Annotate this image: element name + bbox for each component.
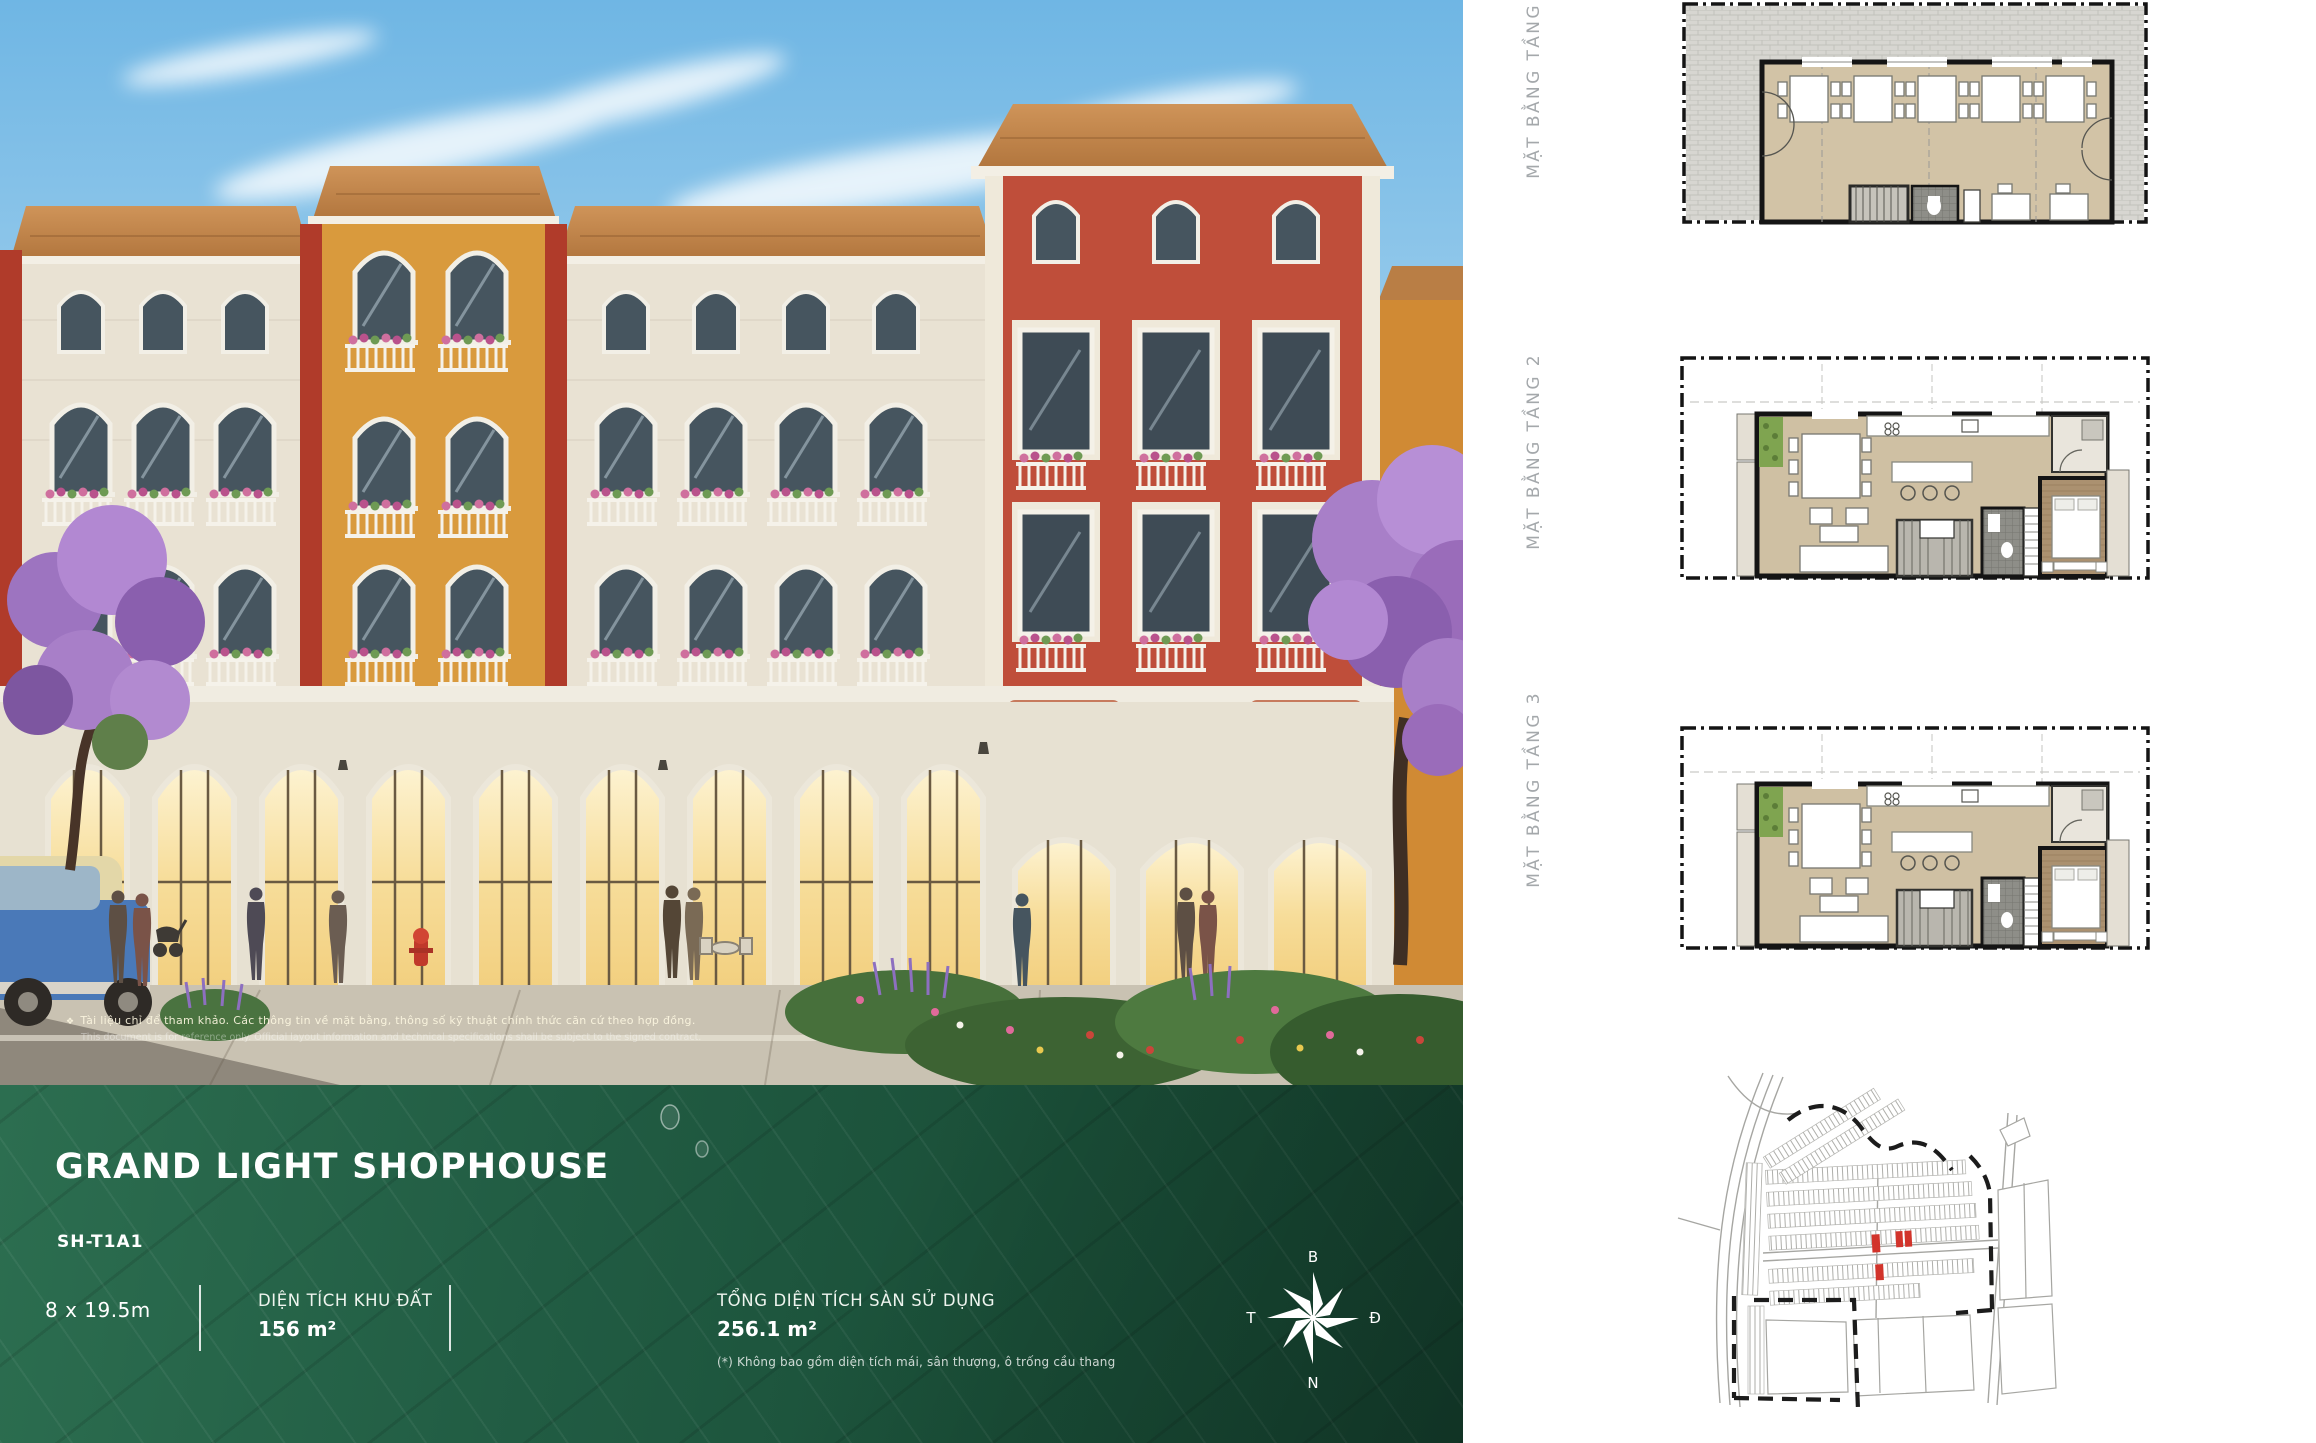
disclaimer-en: This document is for reference only. Off… [81, 1032, 1306, 1044]
page-title: GRAND LIGHT SHOPHOUSE [55, 1147, 609, 1187]
compass-east-label: Đ [1369, 1309, 1381, 1327]
bedroom [2040, 478, 2107, 576]
divider [199, 1285, 201, 1351]
compass-west-label: T [1245, 1309, 1256, 1327]
brochure-page: THE SHOW MAMBO [0, 0, 2316, 1443]
gfa-value: 256.1 m² [717, 1317, 1115, 1341]
diamond-bullet-icon: ❖ [66, 1017, 74, 1027]
gfa-note: (*) Không bao gồm diện tích mái, sân thư… [717, 1355, 1115, 1369]
rendering-scene: THE SHOW MAMBO [0, 0, 1463, 1085]
floor-plan-1 [1662, 0, 2264, 232]
planter [1759, 417, 1783, 467]
land-area-spec: DIỆN TÍCH KHU ĐẤT 156 m² [258, 1291, 433, 1341]
floor-plan-2 [1662, 350, 2264, 588]
building-facade: THE SHOW MAMBO [0, 104, 1463, 996]
disclaimer-vi: ❖Tài liệu chỉ để tham khảo. Các thông ti… [66, 1014, 1306, 1028]
ensuite [2052, 416, 2107, 472]
storefront-windows [1802, 57, 2092, 67]
compass-south-label: N [1307, 1374, 1318, 1392]
compass-rose: B Đ N T [1233, 1238, 1393, 1408]
building-rendering: THE SHOW MAMBO [0, 0, 1463, 1085]
land-area-label: DIỆN TÍCH KHU ĐẤT [258, 1291, 433, 1310]
gfa-label: TỔNG DIỆN TÍCH SÀN SỬ DỤNG [717, 1291, 1115, 1310]
land-area-value: 156 m² [258, 1317, 433, 1341]
wc [1912, 186, 1958, 222]
pantry-closet [1964, 190, 1980, 222]
balcony [2107, 470, 2129, 576]
wardrobe [2024, 508, 2040, 576]
floor-plan-3 [1662, 720, 2264, 958]
info-panel: GRAND LIGHT SHOPHOUSE SH-T1A1 8 x 19.5m … [0, 1085, 1463, 1443]
site-map [1668, 1068, 2068, 1428]
floor-plan-label-3: MẶT BẰNG TẦNG 3 [1524, 691, 1554, 701]
photo-disclaimer: ❖Tài liệu chỉ để tham khảo. Các thông ti… [66, 1014, 1306, 1044]
staircase [1897, 520, 1972, 576]
unit-code: SH-T1A1 [57, 1232, 143, 1252]
floor-plan-label-2: MẶT BẰNG TẦNG 2 [1524, 353, 1554, 363]
bathroom [1982, 508, 2024, 576]
divider [449, 1285, 451, 1351]
gfa-spec: TỔNG DIỆN TÍCH SÀN SỬ DỤNG 256.1 m² (*) … [717, 1291, 1115, 1369]
upper-floor-plan [1682, 358, 2148, 578]
lot-dimensions: 8 x 19.5m [45, 1298, 151, 1322]
water-droplets [640, 1091, 760, 1181]
compass-north-label: B [1308, 1248, 1318, 1266]
staircase [1850, 186, 1908, 222]
